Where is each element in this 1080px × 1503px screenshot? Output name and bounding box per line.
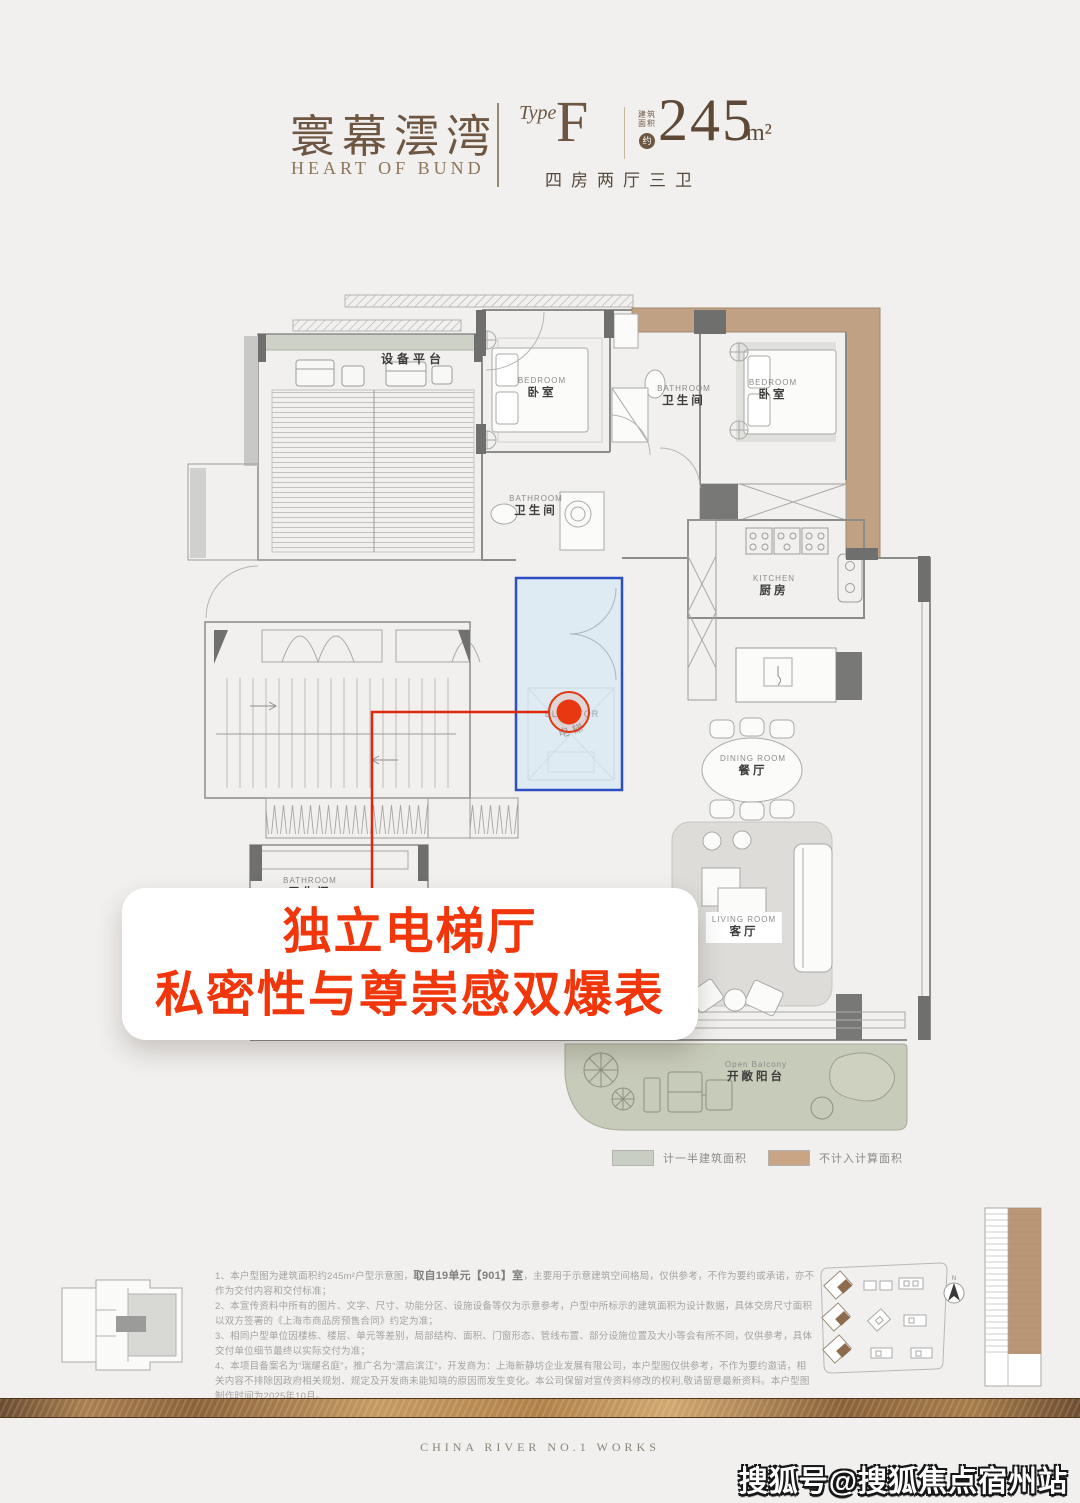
half-counted-area-band <box>258 334 482 350</box>
room-label-bedroom-top-left: BEDROOM 卧室 <box>518 376 566 401</box>
room-label-dining-room: DINING ROOM 餐厅 <box>720 754 786 779</box>
room-label-bedroom-top-right: BEDROOM 卧室 <box>749 378 797 403</box>
disclaimer-text: 1、本户型图为建筑面积约245m²户型示意图，取自19单元【901】室，主要用于… <box>215 1269 815 1404</box>
legend-swatch-half-counted <box>612 1150 654 1166</box>
room-label-bathroom-top: BATHROOM 卫生间 <box>657 384 711 409</box>
disclaimer-line-3: 3、相同户型单位因楼栋、楼层、单元等差别，局部结构、面积、门窗形态、管线布置、部… <box>215 1329 815 1359</box>
room-label-living-room: LIVING ROOM 客厅 <box>706 912 782 943</box>
elevator-hall-highlight-box <box>516 578 622 790</box>
callout-line1: 独立电梯厅 <box>282 901 537 964</box>
disclaimer-line-1: 1、本户型图为建筑面积约245m²户型示意图，取自19单元【901】室，主要用于… <box>215 1269 815 1299</box>
room-label-bathroom-middle: BATHROOM 卫生间 <box>509 494 563 519</box>
gold-divider-bar <box>0 1398 1080 1418</box>
elevator-marker-dot <box>557 700 582 725</box>
sohu-watermark: 搜狐号@搜狐焦点宿州站 <box>739 1458 1068 1500</box>
callout-line2: 私密性与尊崇感双爆表 <box>155 964 665 1027</box>
tower-stack-diagram <box>985 1208 1041 1386</box>
site-plan-diagram <box>821 1263 947 1373</box>
compass-north-label: N <box>952 1276 956 1282</box>
legend-not-counted: 不计入计算面积 <box>768 1150 903 1166</box>
equipment-platform-label: 设备平台 <box>381 350 445 367</box>
footer-slogan: CHINA RIVER NO.1 WORKS <box>0 1440 1080 1455</box>
disclaimer-line-2: 2、本宣传资料中所有的图片、文字、尺寸、功能分区、设施设备等仅为示意参考，户型中… <box>215 1299 815 1329</box>
legend-half-counted: 计一半建筑面积 <box>612 1150 747 1166</box>
unit-source-highlight: 取自19单元【901】室 <box>413 1270 523 1282</box>
floorplan-poster: 寰幕澐湾 HEART OF BUND Type F 建筑 面积 约 245 m²… <box>0 0 1080 1503</box>
legend-swatch-not-counted <box>768 1150 810 1166</box>
room-label-open-balcony: Open Balcony 开敞阳台 <box>725 1060 787 1085</box>
feature-callout: 独立电梯厅 私密性与尊崇感双爆表 <box>122 888 698 1040</box>
room-label-kitchen: KITCHEN 厨房 <box>753 574 795 599</box>
legend-label-not-counted: 不计入计算面积 <box>819 1150 903 1166</box>
key-plan-diagram <box>62 1280 182 1370</box>
legend-label-half-counted: 计一半建筑面积 <box>663 1150 747 1166</box>
